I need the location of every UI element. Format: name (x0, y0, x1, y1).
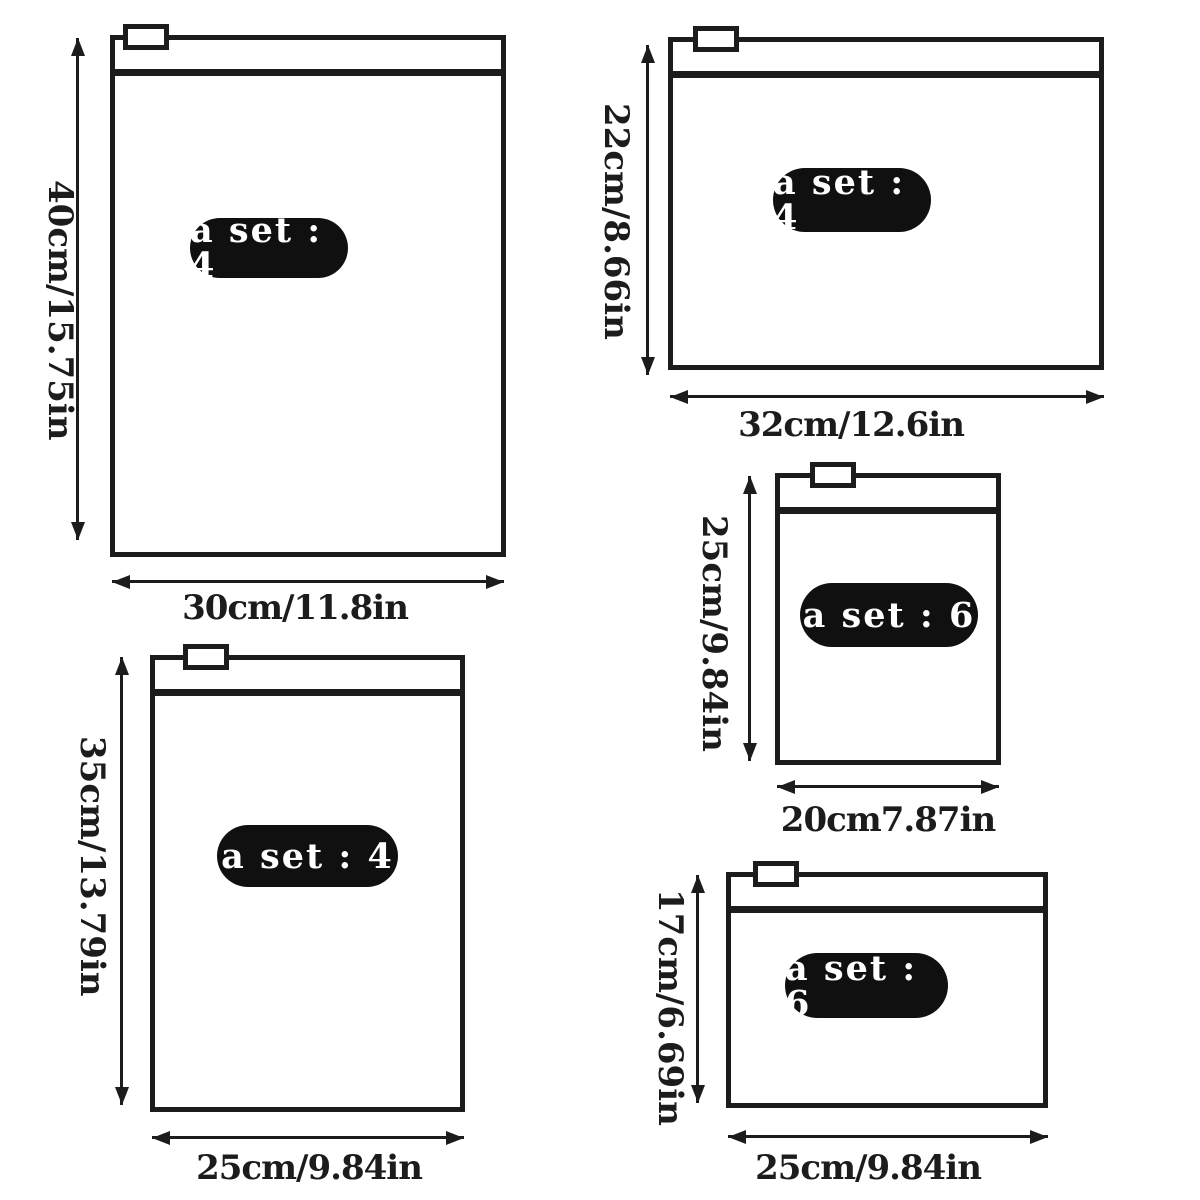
height-label: 22cm/8.66in (596, 103, 636, 340)
bag-outline-35x25: a set : 4 (150, 655, 465, 1112)
height-label: 35cm/13.79in (72, 736, 112, 997)
height-arrow (120, 657, 123, 1105)
height-arrow (696, 875, 699, 1103)
width-arrow (777, 785, 999, 788)
width-label: 20cm7.87in (698, 800, 1078, 840)
set-count-badge: a set : 4 (217, 825, 398, 887)
zipper-slider-tab (123, 24, 169, 50)
zipper-slider-tab (693, 26, 739, 52)
set-count-badge: a set : 4 (190, 218, 348, 278)
set-count-badge: a set : 4 (773, 168, 931, 232)
zipper-seal-line (155, 689, 460, 696)
width-label: 32cm/12.6in (661, 405, 1041, 445)
zipper-slider-tab (753, 861, 799, 887)
height-arrow (646, 45, 649, 375)
height-label: 40cm/15.75in (40, 180, 80, 441)
width-label: 25cm/9.84in (119, 1148, 499, 1188)
width-arrow (670, 395, 1104, 398)
bag-outline-22x32: a set : 4 (668, 37, 1104, 370)
width-label: 30cm/11.8in (105, 588, 485, 628)
zipper-slider-tab (810, 462, 856, 488)
bag-size-diagram: a set : 4 40cm/15.75in 30cm/11.8in a set… (0, 0, 1200, 1200)
zipper-seal-line (673, 71, 1099, 78)
zipper-seal-line (780, 507, 996, 514)
zipper-seal-line (115, 69, 501, 76)
bag-outline-17x25: a set : 6 (726, 872, 1048, 1108)
height-label: 17cm/6.69in (650, 889, 690, 1126)
width-arrow (728, 1135, 1048, 1138)
bag-outline-25x20: a set : 6 (775, 473, 1001, 765)
zipper-slider-tab (183, 644, 229, 670)
bag-outline-40x30: a set : 4 (110, 35, 506, 557)
set-count-badge: a set : 6 (785, 953, 948, 1018)
zipper-seal-line (731, 906, 1043, 913)
height-arrow (748, 476, 751, 761)
width-arrow (152, 1136, 464, 1139)
height-label: 25cm/9.84in (694, 515, 734, 752)
width-label: 25cm/9.84in (678, 1148, 1058, 1188)
set-count-badge: a set : 6 (800, 583, 978, 647)
width-arrow (112, 580, 504, 583)
